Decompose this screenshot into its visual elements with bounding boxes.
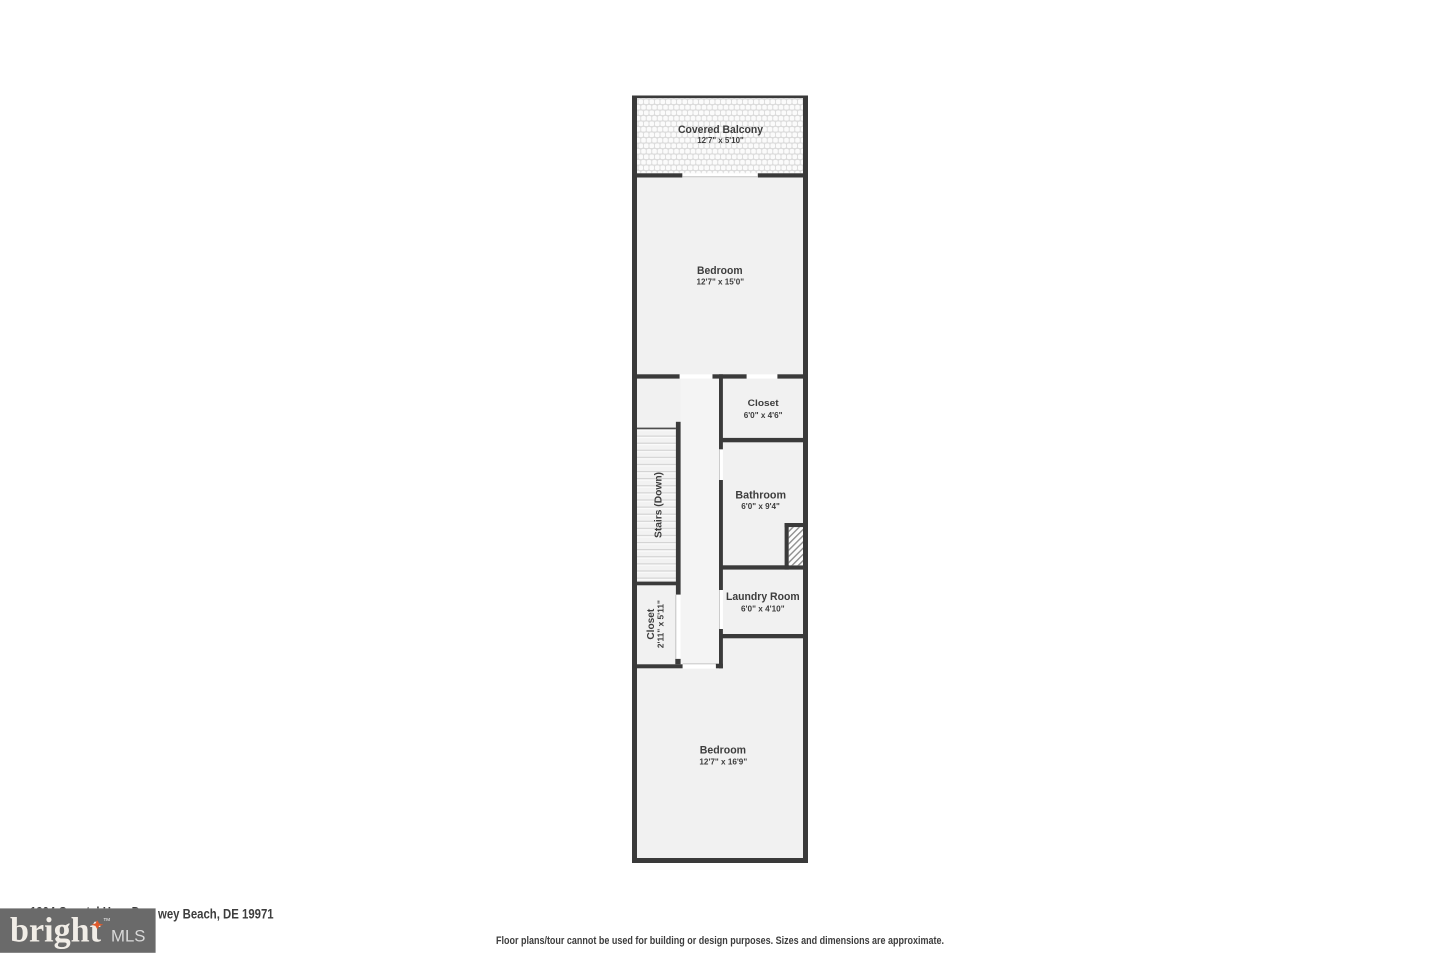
svg-text:2'11" x 5'11": 2'11" x 5'11" [655,600,665,648]
svg-text:bright: bright [10,911,101,950]
svg-text:Laundry Room: Laundry Room [726,591,800,603]
svg-text:6'0" x 9'4": 6'0" x 9'4" [741,501,780,511]
svg-text:Floor plans/tour cannot be use: Floor plans/tour cannot be used for buil… [496,935,944,947]
svg-text:Bedroom: Bedroom [700,745,746,757]
svg-text:wey Beach, DE 19971: wey Beach, DE 19971 [157,906,274,922]
svg-text:Bedroom: Bedroom [697,265,743,277]
svg-text:6'0" x 4'6": 6'0" x 4'6" [744,410,783,420]
svg-text:MLS: MLS [111,928,146,946]
svg-text:12'7" x 15'0": 12'7" x 15'0" [697,277,745,287]
svg-text:TM: TM [104,917,111,922]
svg-text:12'7" x 5'10": 12'7" x 5'10" [697,135,744,145]
svg-text:Closet: Closet [748,398,780,409]
svg-text:Bathroom: Bathroom [735,489,786,501]
svg-text:12'7" x 16'9": 12'7" x 16'9" [699,756,747,766]
svg-text:Stairs (Down): Stairs (Down) [653,472,665,538]
svg-text:6'0" x 4'10": 6'0" x 4'10" [741,604,785,614]
